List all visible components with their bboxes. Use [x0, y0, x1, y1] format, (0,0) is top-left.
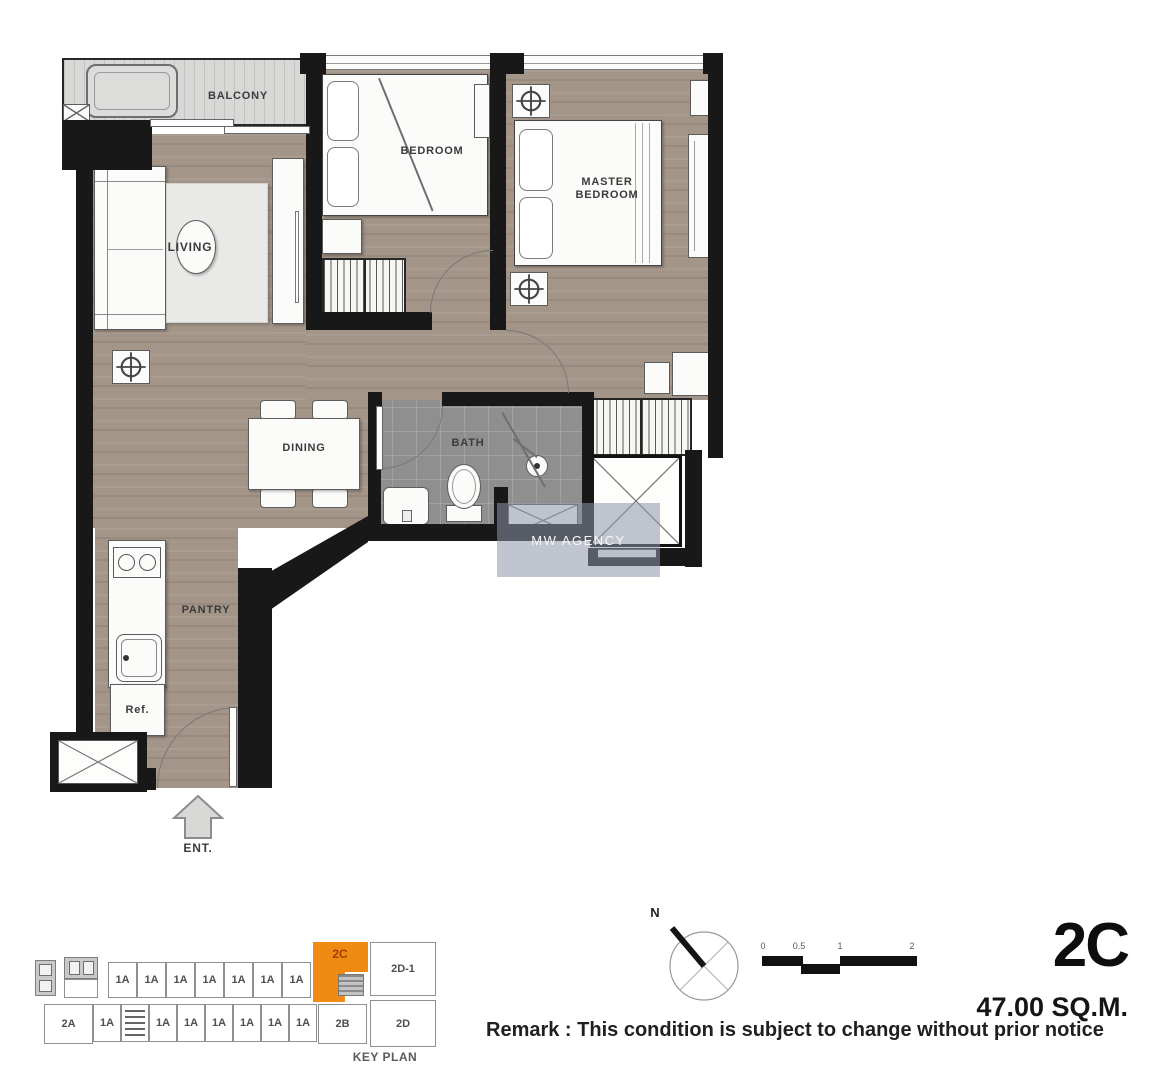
- scale-bar-segment: [762, 956, 803, 966]
- toilet: [447, 464, 481, 509]
- room-label-balcony: BALCONY: [192, 90, 284, 103]
- pillow: [327, 81, 359, 141]
- north-label: N: [645, 905, 665, 920]
- burner: [118, 554, 135, 571]
- sofa-backrest: [95, 167, 108, 329]
- master-wardrobe: [588, 398, 692, 456]
- wall-west: [76, 120, 93, 772]
- keyplan-stairs-cell: [121, 1004, 149, 1042]
- x-icon: [59, 741, 137, 783]
- tv-console: [272, 158, 304, 324]
- room-label-pantry: PANTRY: [168, 604, 244, 617]
- keyplan-cell-1a: 1A: [108, 962, 137, 998]
- sprinkler-icon: [113, 351, 149, 383]
- sofa-cushion-line: [108, 249, 163, 250]
- keyplan-cell-1a: 1A: [195, 962, 224, 998]
- dining-chair: [260, 400, 296, 420]
- pillow: [327, 147, 359, 207]
- sofa: [94, 166, 166, 330]
- keyplan-cell-1a: 1A: [205, 1004, 233, 1042]
- bath-sink: [383, 487, 429, 525]
- floor-plan-page: Ref. BALCONY BEDROOM MASTER BEDROOM LIVI…: [0, 0, 1157, 1080]
- stool: [644, 362, 670, 394]
- stove: [113, 547, 161, 578]
- dining-chair: [260, 488, 296, 508]
- scale-bar-segment: [801, 964, 840, 974]
- keyplan-cell-1a: 1A: [233, 1004, 261, 1042]
- pillow: [519, 129, 553, 191]
- wall-bedroom-south: [306, 312, 432, 330]
- console-line: [694, 141, 695, 251]
- room-label-living: LIVING: [158, 241, 222, 254]
- entrance-arrow-icon: [170, 794, 226, 840]
- bath-door-panel: [376, 406, 383, 470]
- sprinkler-box: [112, 350, 150, 384]
- watermark: MW AGENCY: [497, 503, 660, 577]
- keyplan-cell-1a: 1A: [224, 962, 253, 998]
- keyplan-cell-1a: 1A: [177, 1004, 205, 1042]
- keyplan-cell-1a: 1A: [166, 962, 195, 998]
- toilet-seat: [452, 469, 476, 504]
- entry-shaft-box: [58, 740, 138, 784]
- sliding-door: [150, 119, 234, 127]
- keyplan-cell-1a: 1A: [282, 962, 311, 998]
- elevator-car: [69, 961, 80, 975]
- dining-chair: [312, 400, 348, 420]
- north-compass-icon: [658, 918, 746, 1006]
- elevator-car: [39, 980, 52, 992]
- faucet-dot: [123, 655, 129, 661]
- keyplan-highlight-label: 2C: [318, 947, 362, 961]
- console: [688, 134, 710, 258]
- sprinkler-icon: [513, 85, 549, 117]
- stairs-icon: [125, 1010, 145, 1036]
- keyplan-cell-1a: 1A: [261, 1004, 289, 1042]
- entrance-door-panel: [229, 707, 237, 787]
- elevator-car: [39, 964, 52, 976]
- wall-living-bedroom: [306, 53, 322, 330]
- tv: [295, 211, 299, 303]
- remark-text: Remark : This condition is subject to ch…: [486, 1019, 1104, 1042]
- keyplan-cell-2b: 2B: [318, 1004, 367, 1044]
- stool: [672, 352, 712, 396]
- elevator-car: [83, 961, 94, 975]
- keyplan-cell-1a: 1A: [93, 1004, 121, 1042]
- sprinkler-icon: [511, 273, 547, 305]
- scale-tick: 1: [834, 941, 846, 951]
- scale-tick: 0: [757, 941, 769, 951]
- keyplan-unit-icon: [338, 974, 364, 996]
- keyplan-cell-2a: 2A: [44, 1004, 93, 1044]
- keyplan-cell-2d: 2D: [370, 1000, 436, 1047]
- elevator-icon: [35, 960, 56, 996]
- sprinkler-box: [510, 272, 548, 306]
- scale-bar-segment: [840, 956, 917, 966]
- refrigerator: Ref.: [110, 684, 165, 736]
- dining-chair: [312, 488, 348, 508]
- wall-right: [708, 53, 723, 458]
- shelf: [474, 84, 490, 138]
- room-label-bath: BATH: [436, 437, 500, 450]
- sofa-armrest: [95, 314, 165, 329]
- room-label-dining: DINING: [262, 442, 346, 455]
- keyplan-cell: [64, 979, 98, 998]
- faucet: [402, 510, 412, 522]
- burner: [139, 554, 156, 571]
- unit-name: 2C: [996, 914, 1128, 978]
- entrance-label: ENT.: [170, 842, 226, 855]
- keyplan-cell-1a: 1A: [253, 962, 282, 998]
- keyplan-cell-2d1: 2D-1: [370, 942, 436, 996]
- scale-tick: 2: [906, 941, 918, 951]
- keyplan-cell-1a: 1A: [137, 962, 166, 998]
- keyplan-title: KEY PLAN: [348, 1050, 422, 1064]
- kitchen-sink: [116, 634, 162, 682]
- wall-bath-top: [442, 392, 594, 406]
- balcony-table-inner: [94, 72, 170, 110]
- wall-nw-chunk: [62, 120, 152, 170]
- pillow: [519, 197, 553, 259]
- wardrobe: [322, 258, 406, 316]
- sliding-door: [224, 126, 310, 134]
- wall-pantry-right: [238, 568, 272, 788]
- refrigerator-label: Ref.: [126, 704, 150, 717]
- keyplan-cell-1a: 1A: [149, 1004, 177, 1042]
- x-icon: [64, 105, 89, 121]
- elevator-icon: [64, 957, 98, 979]
- nightstand: [322, 219, 362, 254]
- sprinkler-box: [512, 84, 550, 118]
- room-label-master-bedroom: MASTER BEDROOM: [560, 176, 654, 202]
- room-label-bedroom: BEDROOM: [390, 145, 474, 158]
- balcony-table: [86, 64, 178, 118]
- scale-tick: 0.5: [789, 941, 809, 951]
- keyplan-cell-1a: 1A: [289, 1004, 317, 1042]
